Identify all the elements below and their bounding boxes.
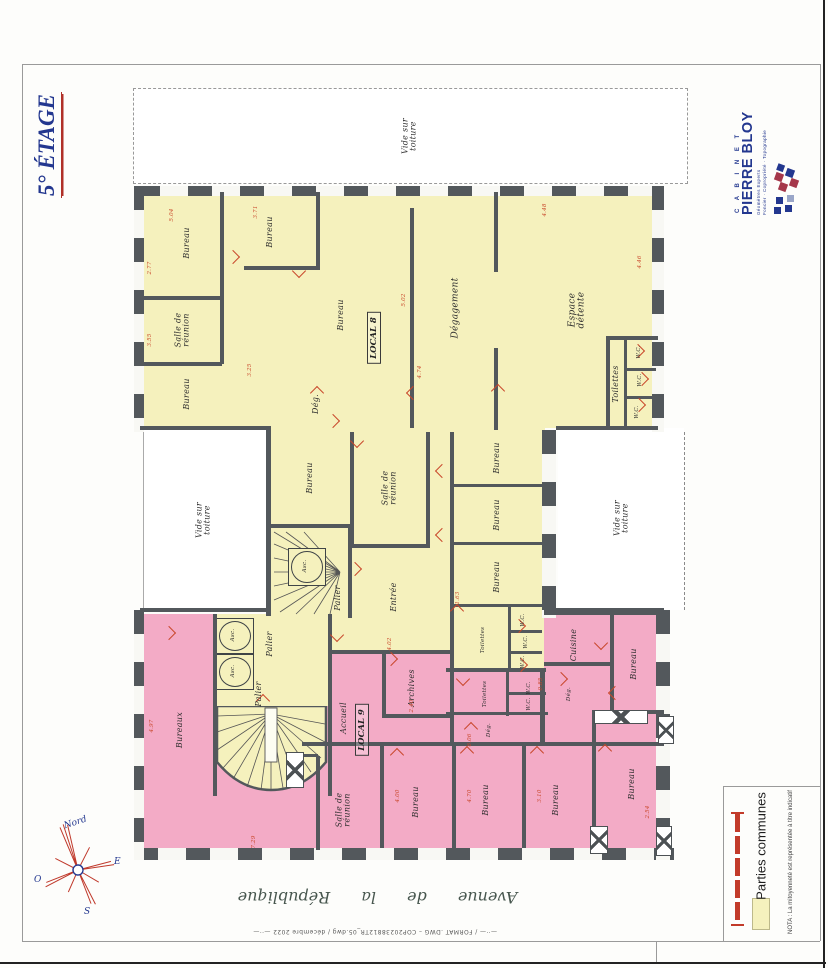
local8-tag: LOCAL 8	[367, 312, 381, 364]
dimension-label: 1.63	[455, 591, 461, 604]
wall	[328, 614, 332, 796]
logo-company-name: PIERRE BLOY	[741, 75, 756, 215]
page-title: 5° ÉTAGE	[34, 70, 80, 220]
wall-exterior	[134, 186, 144, 432]
wall	[446, 668, 546, 672]
legend-label: Parties communes	[754, 792, 769, 900]
wall	[446, 712, 548, 715]
room-label: Bureau	[183, 227, 191, 258]
wall	[544, 610, 664, 615]
dimension-label: 3.55	[147, 333, 153, 346]
wall	[266, 426, 271, 616]
room-label: Bureau	[493, 499, 501, 530]
void-label: Vide sur toiture	[196, 502, 213, 538]
wall	[140, 608, 270, 612]
room-label: Toilettes	[483, 681, 489, 708]
wall	[606, 336, 658, 340]
wall	[627, 396, 656, 399]
wall	[268, 524, 352, 528]
wall-exterior	[542, 430, 556, 618]
room-label: W.C.	[635, 405, 641, 418]
logo-mosaic-icon	[773, 163, 803, 215]
wall	[316, 756, 320, 850]
dimension-label: 7.29	[251, 835, 257, 848]
shaft-box	[286, 752, 304, 788]
wall	[454, 484, 542, 487]
room-label: Entrée	[390, 582, 398, 611]
dimension-label: 2.77	[147, 261, 153, 274]
room-label: Salle de réunion	[175, 313, 192, 348]
room-label: Bureau	[337, 299, 345, 330]
room-label: Salle de réunion	[336, 793, 353, 828]
room-label: Asc.	[231, 665, 237, 678]
room-label: Bureaux	[176, 712, 184, 748]
file-reference-note: —··— / FORMAT .DWG – COP20238812TR_05.dw…	[180, 928, 570, 935]
street-name-label: Avenue de la République	[225, 888, 530, 907]
shaft-box	[594, 710, 648, 724]
wall	[350, 544, 430, 548]
room-label: Bureau	[412, 786, 420, 817]
room-label: W.C.	[521, 655, 527, 668]
toilettes-yellow-area	[452, 614, 544, 672]
room-label: Bureau	[628, 768, 636, 799]
compass-east-label: E	[113, 857, 121, 867]
wall	[454, 542, 542, 545]
legend-top-line	[723, 786, 820, 787]
room-label: Bureau	[493, 442, 501, 473]
room-label: Salle de réunion	[382, 471, 399, 506]
legend-divider	[723, 786, 724, 941]
dimension-label: 4.48	[542, 203, 548, 216]
dimension-label: 4.70	[467, 789, 473, 802]
dimension-label: 5.02	[401, 293, 407, 306]
compass-north-label: Nord	[62, 814, 88, 831]
wall	[316, 192, 320, 270]
company-logo: C A B I N E T PIERRE BLOY Géomètres Expe…	[735, 75, 805, 215]
wall	[140, 296, 222, 300]
dimension-label: 3.25	[247, 363, 253, 376]
frame-top	[22, 64, 820, 65]
room-label: Palier	[255, 681, 263, 706]
wall	[213, 614, 217, 796]
wall	[450, 672, 454, 744]
wall-exterior	[136, 186, 662, 196]
legend-nota: NOTA : La mitoyenneté est représentée à …	[788, 790, 794, 934]
dimension-label: 5.04	[169, 208, 175, 221]
room-label: Bureau	[493, 561, 501, 592]
room-label: Bureau	[482, 784, 490, 815]
dimension-label: 4.02	[387, 637, 393, 650]
compass-rose-icon: Nord E O S	[32, 812, 124, 916]
room-label: Bureau	[266, 216, 274, 247]
room-label: Espace détente	[569, 292, 588, 329]
room-label: Dég.	[487, 723, 493, 737]
void-label: Vide sur toiture	[402, 118, 419, 154]
scan-edge-right	[823, 0, 825, 968]
compass-south-label: S	[84, 907, 90, 916]
wall	[140, 362, 222, 366]
dimension-label: 4.00	[395, 789, 401, 802]
room-label: Asc.	[231, 629, 237, 642]
room-label: Dégagement	[451, 277, 460, 338]
wall	[220, 192, 224, 364]
dimension-label: 3.10	[537, 789, 543, 802]
frame-bottom	[22, 941, 820, 942]
wall	[450, 432, 454, 674]
room-label: W.C.	[527, 681, 533, 694]
room-label: Asc.	[303, 560, 309, 573]
wall	[382, 652, 386, 718]
dimension-label: 4.97	[149, 719, 155, 732]
room-label: Accueil	[340, 702, 348, 734]
scale-bar-tick	[731, 812, 744, 814]
floor-plan-sheet: { "sheet": { "title": "5° ÉTAGE", "stree…	[0, 0, 828, 968]
room-label: Bureau	[630, 648, 638, 679]
void-label: Vide sur toiture	[614, 500, 631, 536]
wall	[556, 426, 658, 430]
floor-title: 5° ÉTAGE	[34, 92, 62, 198]
dimension-label: 4.74	[417, 365, 423, 378]
room-label: Bureau	[552, 784, 560, 815]
dimension-label: 4.46	[637, 255, 643, 268]
room-label: Bureau	[306, 462, 314, 493]
room-label: Bureau	[183, 378, 191, 409]
room-label: Toilettes	[481, 627, 487, 654]
room-label: Palier	[334, 585, 342, 610]
wall	[624, 340, 627, 430]
compass-west-label: O	[34, 875, 42, 885]
stairs-lower	[215, 706, 328, 792]
wall	[244, 266, 320, 270]
room-label: Palier	[266, 631, 274, 656]
frame-right	[820, 64, 821, 941]
dimension-label: 3.71	[253, 205, 259, 218]
room-label: Cuisine	[570, 629, 578, 661]
wall	[494, 192, 498, 272]
scale-bar-tick	[731, 924, 744, 926]
wall	[508, 607, 511, 672]
wall	[426, 432, 430, 546]
wall	[606, 336, 610, 430]
room-label: W.C.	[527, 697, 533, 710]
room-label: Dég.	[312, 394, 320, 414]
wall	[380, 746, 384, 848]
shaft-box	[658, 716, 674, 744]
room-label: W.C.	[521, 613, 527, 626]
shaft-box	[590, 826, 608, 854]
logo-tagline-2: Foncier · Copropriété · Topographie	[762, 75, 768, 215]
wall	[522, 746, 526, 848]
room-label: W.C.	[524, 635, 530, 648]
wall	[140, 426, 270, 430]
dimension-label: 2.40	[409, 699, 415, 712]
local9-tag: LOCAL 9	[355, 704, 369, 756]
room-label: W.C.	[638, 373, 644, 386]
legend-swatch	[752, 898, 770, 930]
room-label: W.C.	[637, 345, 643, 358]
wall-exterior	[134, 610, 144, 860]
wall	[454, 604, 542, 607]
wall	[544, 662, 614, 666]
wall	[382, 714, 454, 718]
mitoyennete-dashed-line	[684, 432, 685, 610]
frame-left	[22, 64, 23, 941]
titleblock-divider	[656, 941, 657, 962]
wall	[302, 754, 318, 757]
room-label: Toilettes	[612, 365, 620, 402]
scale-bar	[735, 814, 740, 924]
scan-edge-bottom	[0, 962, 826, 964]
shaft-box	[656, 826, 672, 856]
dimension-label: 6.06	[467, 733, 473, 746]
wall	[452, 746, 456, 848]
room-label: Dég.	[567, 687, 573, 701]
wall	[511, 651, 542, 654]
dimension-label: 0.85	[538, 677, 544, 690]
dimension-label: 2.54	[645, 805, 651, 818]
